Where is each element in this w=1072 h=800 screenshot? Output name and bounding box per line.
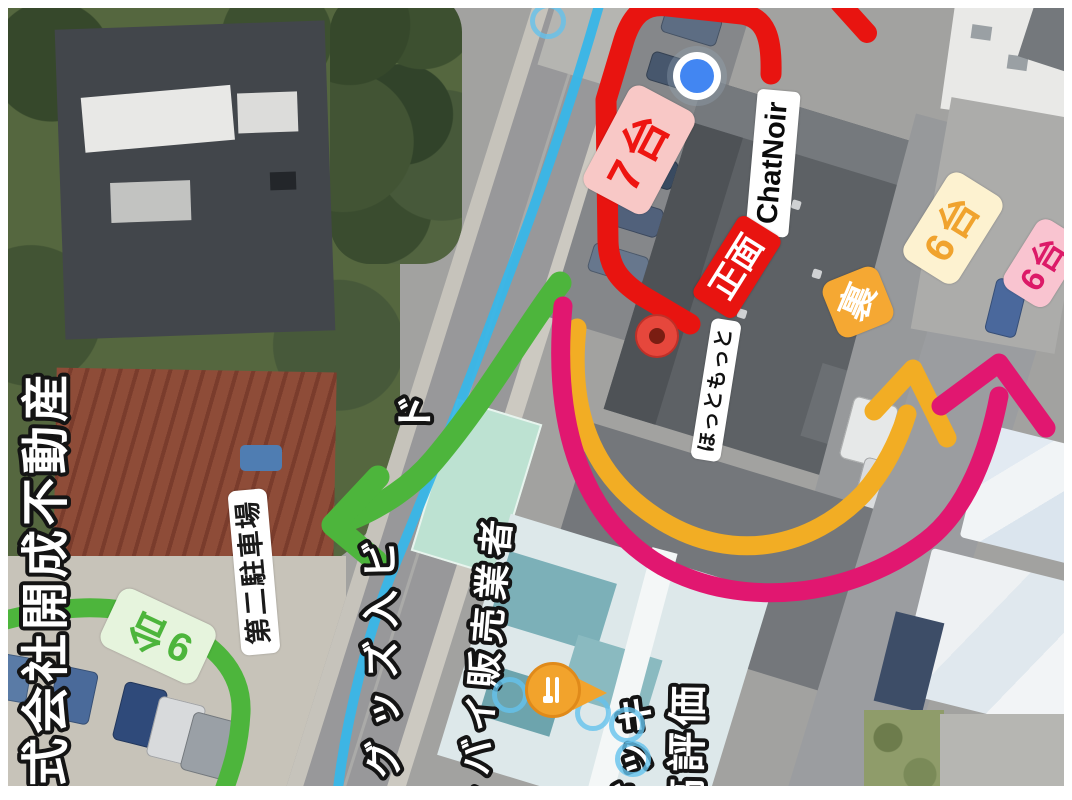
red-stub [840,8,867,33]
poi-goods-building-label[interactable]: ルグッズ入ビ [359,528,407,786]
pin-circle [525,662,581,718]
red-circle-marker[interactable] [635,314,679,358]
walking-route-dot [492,677,528,713]
back-side-label-text: 裏 [834,278,881,325]
second-parking-label-text: 第二駐車場 [234,499,274,646]
map-world: 株式会社開成不動産 ルグッズ入ビ ド トバイ販売業者 デッキ 高評価 [8,8,1064,786]
poi-company-label[interactable]: 株式会社開成不動産 [20,370,73,786]
red-marker-core [649,328,665,344]
restaurant-pin[interactable] [525,662,615,724]
poi-highly-rated-label[interactable]: 高評価 [665,679,711,786]
location-dot-core [680,59,714,93]
screenshot-frame: 株式会社開成不動産 ルグッズ入ビ ド トバイ販売業者 デッキ 高評価 [0,0,1072,800]
current-location-dot[interactable] [673,52,721,100]
poi-motorcycle-dealer-label[interactable]: トバイ販売業者 [451,510,519,786]
orange-back-arrow [575,328,907,546]
chatnoir-label-text: ChatNoir [753,101,793,226]
poi-road-suffix-label[interactable]: ド [395,394,437,432]
fork-knife-icon [543,677,563,703]
satellite-map[interactable]: 株式会社開成不動産 ルグッズ入ビ ド トバイ販売業者 デッキ 高評価 [8,8,1064,786]
walking-route-dot [615,741,651,777]
